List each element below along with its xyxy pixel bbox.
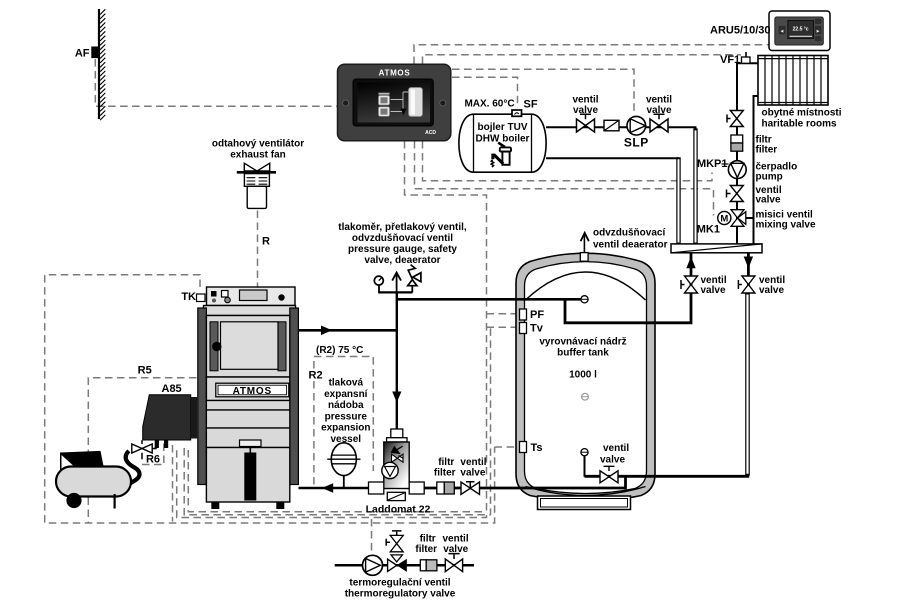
- svg-text:PF: PF: [530, 309, 544, 321]
- svg-text:nádoba: nádoba: [328, 400, 364, 411]
- svg-text:valve: valve: [756, 195, 781, 206]
- svg-text:mixing valve: mixing valve: [756, 220, 816, 231]
- svg-text:termoregulační ventil: termoregulační ventil: [349, 577, 450, 588]
- svg-text:ventil: ventil: [603, 443, 629, 454]
- svg-text:valve: valve: [443, 544, 468, 555]
- svg-text:odvzdušňovací ventil: odvzdušňovací ventil: [352, 233, 453, 244]
- svg-text:ventil deaerator: ventil deaerator: [593, 240, 668, 251]
- svg-text:R: R: [262, 236, 270, 248]
- svg-text:valve: valve: [573, 105, 598, 116]
- svg-text:filtr: filtr: [438, 457, 454, 468]
- svg-text:Laddomat 22: Laddomat 22: [366, 504, 431, 516]
- svg-text:R6: R6: [146, 454, 160, 466]
- svg-text:valve: valve: [646, 105, 671, 116]
- svg-text:ventil: ventil: [572, 95, 598, 106]
- svg-text:valve: valve: [460, 468, 485, 479]
- svg-text:valve: valve: [759, 285, 784, 296]
- svg-text:ATMOS: ATMOS: [379, 69, 411, 78]
- svg-text:R2: R2: [309, 370, 323, 382]
- svg-text:(R2) 75 °C: (R2) 75 °C: [316, 345, 363, 356]
- svg-text:▸: ▸: [816, 29, 820, 35]
- svg-text:valve: valve: [701, 285, 726, 296]
- svg-text:SF: SF: [524, 99, 538, 111]
- svg-text:obytné místnosti: obytné místnosti: [762, 107, 842, 118]
- svg-text:R5: R5: [138, 364, 152, 376]
- svg-text:filter: filter: [756, 145, 778, 156]
- svg-text:valve: valve: [600, 455, 625, 466]
- svg-text:A85: A85: [162, 383, 182, 395]
- svg-text:TK: TK: [181, 291, 196, 303]
- svg-text:tlaková: tlaková: [329, 378, 364, 389]
- svg-text:buffer tank: buffer tank: [557, 348, 609, 359]
- svg-text:SLP: SLP: [624, 136, 649, 150]
- svg-text:odvzdušňovací: odvzdušňovací: [593, 228, 666, 239]
- svg-text:ventil: ventil: [460, 457, 486, 468]
- svg-text:ATMOS: ATMOS: [233, 386, 272, 397]
- svg-text:DHW boiler: DHW boiler: [476, 134, 530, 145]
- svg-text:thermoregulatory valve: thermoregulatory valve: [345, 588, 456, 599]
- svg-text:Tv: Tv: [530, 323, 544, 335]
- svg-text:AF: AF: [75, 47, 90, 59]
- svg-text:filter: filter: [434, 468, 456, 479]
- svg-text:◂: ◂: [780, 29, 784, 35]
- svg-text:ARU5/10/30: ARU5/10/30: [710, 25, 771, 37]
- svg-text:MKP1: MKP1: [697, 158, 728, 170]
- svg-text:VF1: VF1: [720, 54, 740, 66]
- svg-text:vyrovnávací nádrž: vyrovnávací nádrž: [539, 337, 626, 348]
- svg-text:22.5 °c: 22.5 °c: [793, 27, 809, 33]
- svg-text:ACD: ACD: [425, 130, 436, 136]
- svg-text:MK1: MK1: [697, 224, 720, 236]
- svg-text:M: M: [720, 214, 728, 225]
- svg-text:1000 l: 1000 l: [569, 370, 597, 381]
- svg-text:ventil: ventil: [646, 95, 672, 106]
- svg-text:expansion: expansion: [321, 423, 370, 434]
- svg-text:bojler TUV: bojler TUV: [477, 122, 527, 133]
- svg-text:pump: pump: [756, 172, 783, 183]
- svg-text:haritable rooms: haritable rooms: [762, 119, 837, 130]
- svg-text:pressure: pressure: [325, 411, 368, 422]
- svg-text:pressure gauge, safety: pressure gauge, safety: [348, 244, 457, 255]
- svg-text:expansní: expansní: [324, 389, 369, 400]
- svg-text:vessel: vessel: [331, 434, 362, 445]
- svg-text:Ts: Ts: [531, 442, 543, 454]
- svg-text:exhaust fan: exhaust fan: [230, 150, 286, 161]
- svg-text:MAX. 60°C: MAX. 60°C: [464, 99, 514, 110]
- svg-text:filter: filter: [415, 544, 437, 555]
- svg-text:valve, deaerator: valve, deaerator: [364, 255, 440, 266]
- svg-text:tlakoměr, přetlakový ventil,: tlakoměr, přetlakový ventil,: [338, 222, 467, 233]
- svg-text:odtahový ventilátor: odtahový ventilátor: [212, 138, 304, 149]
